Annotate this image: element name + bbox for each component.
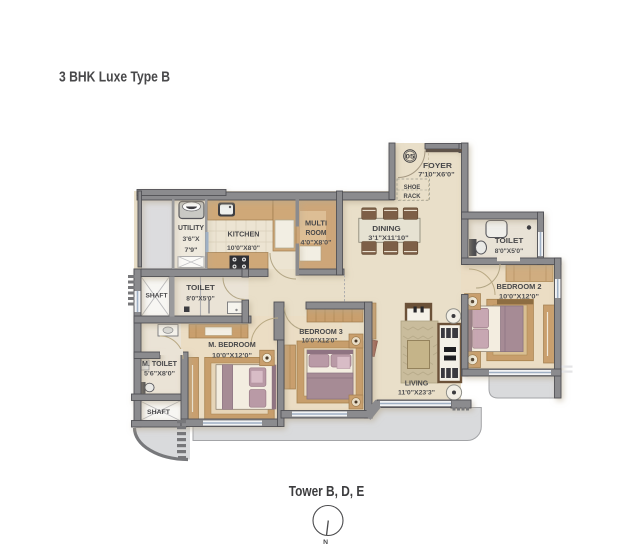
svg-text:TOILET: TOILET — [186, 283, 215, 292]
svg-text:7'10"X6'0": 7'10"X6'0" — [418, 172, 455, 179]
svg-text:4'0"X8'0": 4'0"X8'0" — [301, 240, 332, 247]
svg-text:SHOE: SHOE — [404, 184, 421, 191]
svg-text:TOILET: TOILET — [495, 236, 524, 245]
svg-text:ROOM: ROOM — [306, 230, 327, 237]
svg-text:3'6"X: 3'6"X — [183, 236, 201, 243]
svg-text:7'9": 7'9" — [185, 247, 198, 254]
svg-text:SHAFT: SHAFT — [146, 293, 169, 300]
svg-text:05: 05 — [406, 154, 416, 161]
svg-text:UTILITY: UTILITY — [178, 225, 204, 232]
svg-text:10'0"X12'0": 10'0"X12'0" — [212, 353, 252, 360]
svg-text:3 BHK Luxe Type B: 3 BHK Luxe Type B — [59, 69, 170, 86]
svg-text:RACK: RACK — [404, 193, 421, 200]
svg-text:MULTI: MULTI — [305, 221, 327, 228]
svg-text:N: N — [323, 539, 328, 546]
svg-text:8'0"X5'0": 8'0"X5'0" — [186, 296, 215, 303]
svg-text:DINING: DINING — [372, 224, 401, 233]
svg-text:M. TOILET: M. TOILET — [142, 361, 178, 368]
svg-text:LIVING: LIVING — [405, 379, 429, 388]
svg-text:SHAFT: SHAFT — [147, 409, 171, 416]
svg-text:3'1"X11'10": 3'1"X11'10" — [368, 235, 409, 242]
svg-text:11'0"X23'3": 11'0"X23'3" — [398, 390, 435, 397]
svg-text:10'0"X8'0": 10'0"X8'0" — [227, 245, 260, 252]
svg-text:Tower B, D, E: Tower B, D, E — [289, 484, 365, 500]
svg-text:M. BEDROOM: M. BEDROOM — [208, 340, 256, 349]
svg-text:BEDROOM 3: BEDROOM 3 — [299, 327, 343, 336]
svg-text:BEDROOM 2: BEDROOM 2 — [497, 282, 542, 291]
svg-text:5'6"X8'0": 5'6"X8'0" — [144, 371, 175, 378]
svg-text:8'0"X5'0": 8'0"X5'0" — [495, 248, 524, 255]
svg-text:10'0"X12'0": 10'0"X12'0" — [302, 338, 338, 345]
svg-text:FOYER: FOYER — [423, 161, 453, 170]
svg-text:KITCHEN: KITCHEN — [228, 230, 260, 239]
svg-text:10'0"X12'0": 10'0"X12'0" — [499, 294, 539, 301]
